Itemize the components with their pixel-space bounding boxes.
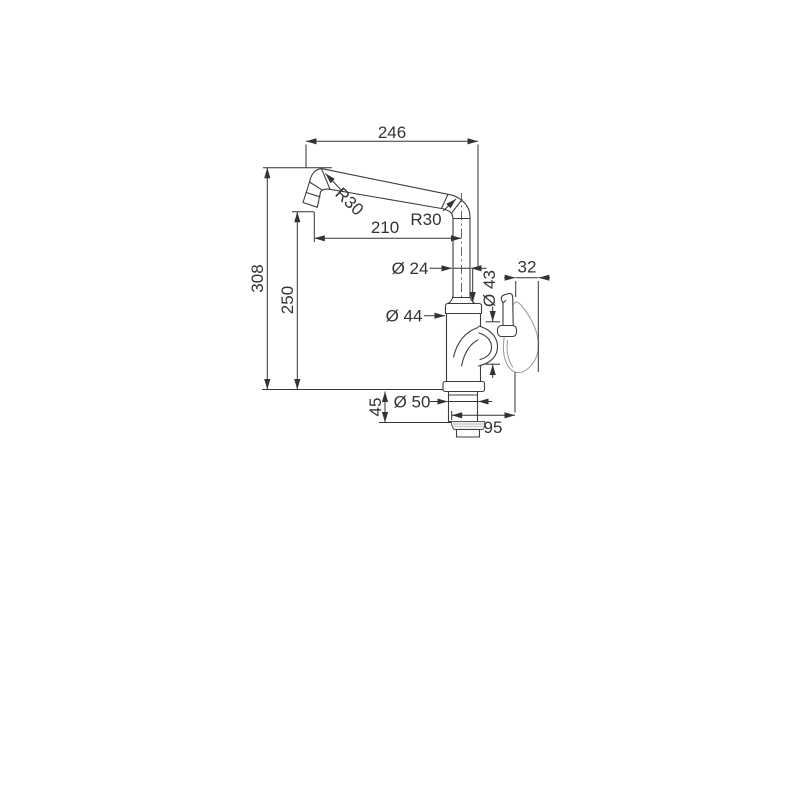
dim-shank-height-label: 45 xyxy=(366,398,385,417)
dim-body-diameter-label: Ø 44 xyxy=(386,307,423,326)
dim-handle-width-label: 32 xyxy=(518,258,537,277)
handle-lever-post xyxy=(501,293,513,325)
drawing-canvas: 246 308 250 210 R30 R30 xyxy=(0,0,800,800)
faucet-base xyxy=(443,382,485,438)
dim-radius-right-label: R30 xyxy=(410,210,441,229)
dim-overall-height-label: 308 xyxy=(248,264,267,292)
dim-spout-reach-label: 210 xyxy=(371,218,399,237)
pipe-flare-left xyxy=(448,296,453,304)
dim-spout-height: 250 xyxy=(278,212,314,390)
dim-pipe-diameter: Ø 24 xyxy=(392,259,487,303)
side-port-fill xyxy=(479,326,498,366)
base-shank xyxy=(449,392,478,422)
base-nut xyxy=(451,422,484,430)
dim-shank-diameter-label: Ø 50 xyxy=(394,393,431,412)
faucet-technical-drawing: 246 308 250 210 R30 R30 xyxy=(0,0,800,800)
body-bottom-flange xyxy=(443,382,485,392)
body-top-flange xyxy=(446,304,482,314)
dim-handle-diameter-label: Ø 43 xyxy=(480,270,499,307)
dim-pipe-diameter-label: Ø 24 xyxy=(392,259,429,278)
dim-body-diameter: Ø 44 xyxy=(386,307,445,326)
dim-overall-height: 308 xyxy=(248,168,332,390)
dim-spout-width-label: 246 xyxy=(378,123,406,142)
dim-base-depth-label: 95 xyxy=(484,418,503,437)
dimensions: 246 308 250 210 R30 R30 xyxy=(248,123,550,437)
body-cylinder xyxy=(447,314,481,382)
handle-collar xyxy=(498,326,517,337)
base-collar xyxy=(457,430,480,438)
dim-spout-height-label: 250 xyxy=(278,286,297,314)
